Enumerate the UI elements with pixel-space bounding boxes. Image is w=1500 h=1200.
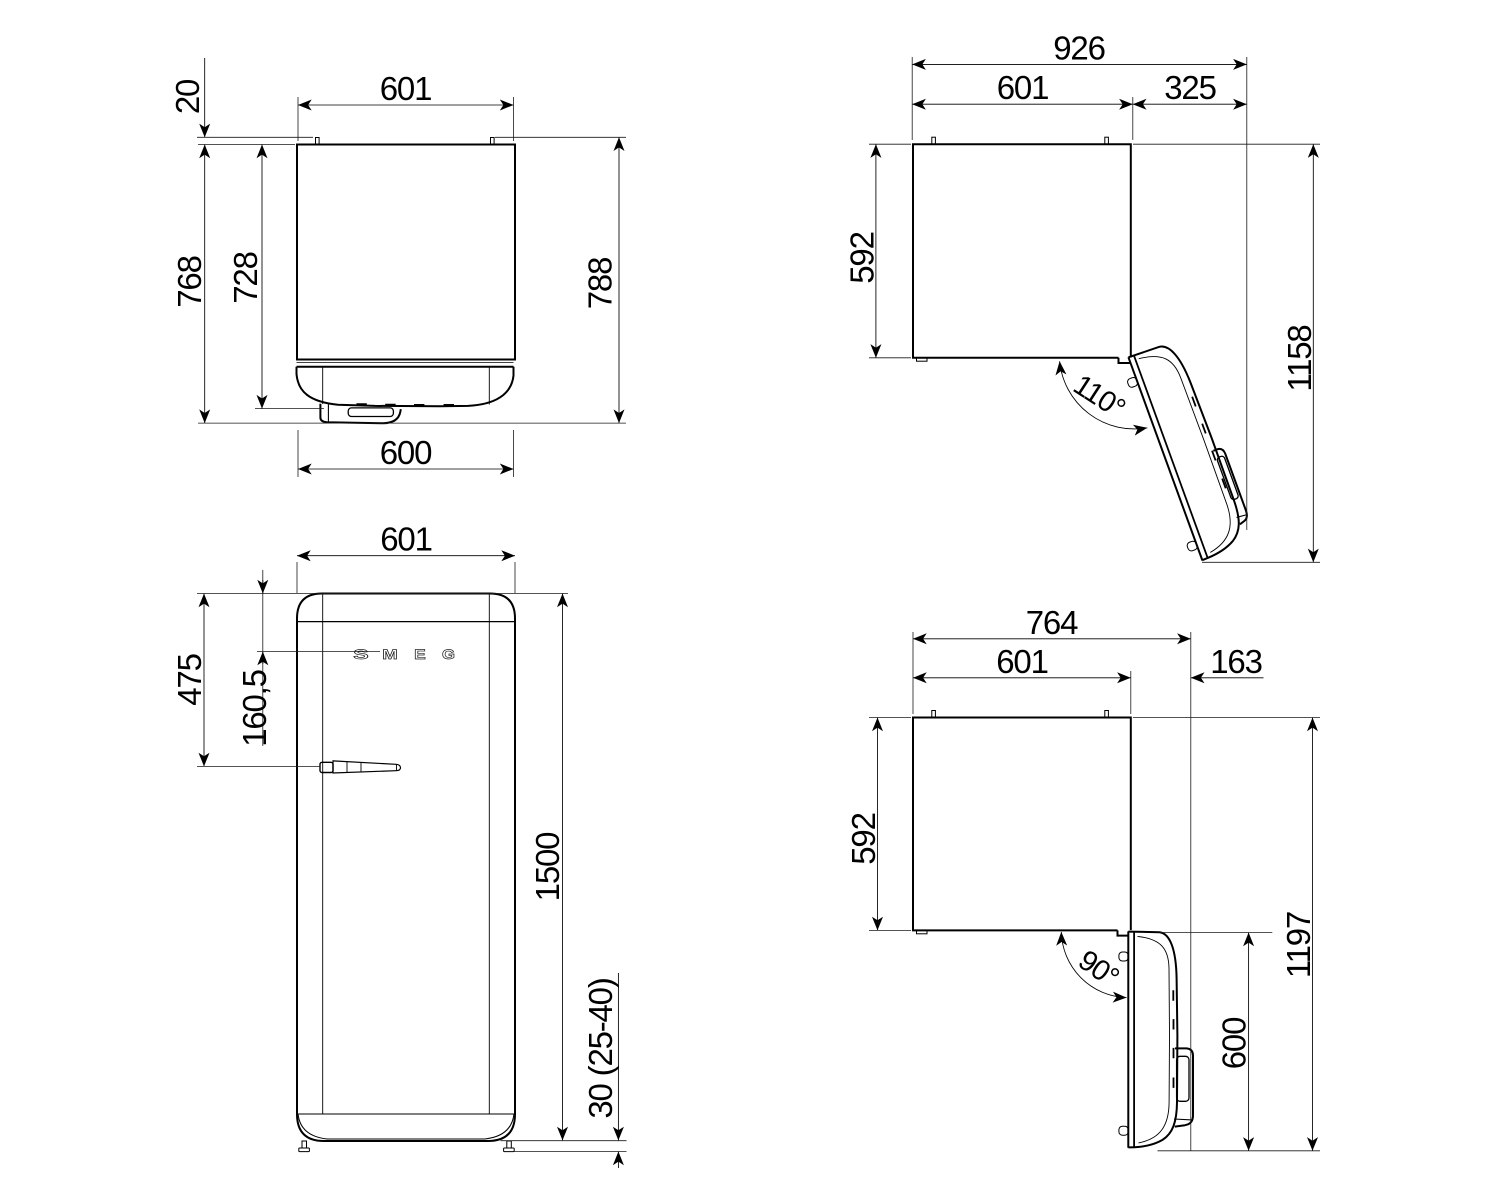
svg-text:30 (25-40): 30 (25-40)	[582, 978, 619, 1118]
svg-text:E: E	[414, 646, 426, 662]
svg-text:600: 600	[1216, 1017, 1253, 1069]
svg-text:601: 601	[380, 521, 431, 558]
svg-text:764: 764	[1026, 604, 1078, 641]
svg-text:926: 926	[1053, 29, 1104, 66]
svg-text:592: 592	[844, 232, 881, 283]
svg-text:163: 163	[1210, 643, 1261, 680]
svg-text:601: 601	[996, 643, 1047, 680]
svg-text:110°: 110°	[1068, 369, 1131, 425]
svg-text:S: S	[353, 646, 368, 662]
svg-text:1158: 1158	[1281, 325, 1318, 391]
svg-text:90°: 90°	[1072, 944, 1124, 994]
svg-text:592: 592	[845, 813, 882, 864]
svg-text:728: 728	[227, 252, 264, 303]
svg-text:600: 600	[380, 434, 432, 471]
svg-text:M: M	[382, 646, 397, 662]
svg-text:G: G	[442, 646, 455, 662]
svg-text:1197: 1197	[1280, 912, 1317, 978]
svg-text:325: 325	[1164, 69, 1215, 106]
svg-text:1500: 1500	[529, 832, 566, 901]
svg-text:160,5: 160,5	[236, 670, 273, 747]
svg-text:601: 601	[380, 70, 431, 107]
svg-text:788: 788	[582, 258, 619, 309]
svg-text:475: 475	[171, 654, 208, 705]
svg-text:601: 601	[997, 69, 1048, 106]
svg-text:20: 20	[169, 79, 206, 114]
svg-text:768: 768	[171, 256, 208, 307]
